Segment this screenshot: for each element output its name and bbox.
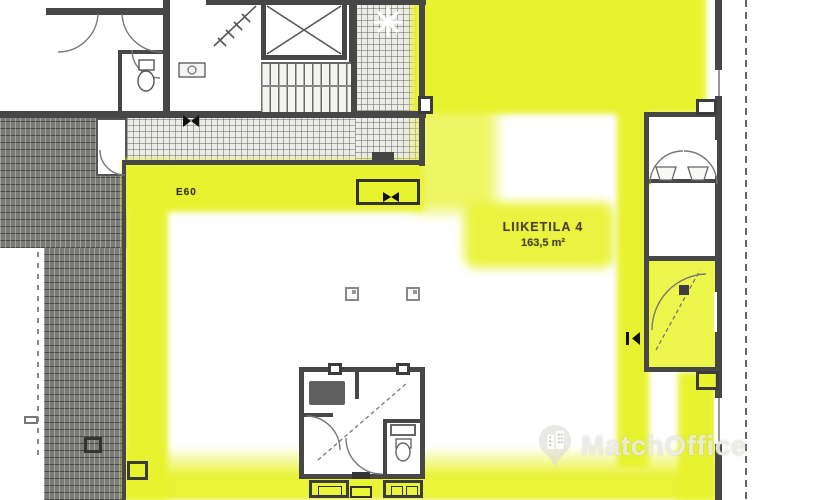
unit-area: 163,5 m² (468, 237, 618, 249)
floor-plan-canvas: LIIKETILA 4 163,5 m² E60 MatchOffice (0, 0, 825, 500)
wall (122, 160, 425, 165)
wall-left-boundary (122, 165, 126, 500)
unit-name: LIIKETILA 4 (468, 220, 618, 234)
wall-nib (696, 99, 717, 115)
wall-divider (644, 256, 722, 261)
wall-nib (418, 96, 433, 114)
wall (163, 0, 170, 115)
kitchen-fixture (309, 480, 349, 498)
watermark-text: MatchOffice (581, 430, 747, 462)
door-mat-mark (372, 152, 394, 160)
column-square-icon (406, 287, 420, 301)
watermark: MatchOffice (536, 423, 747, 469)
wall-south (0, 111, 426, 118)
window (714, 70, 723, 96)
door-threshold (352, 472, 370, 479)
wall (46, 8, 168, 15)
kitchen-fixture (383, 480, 423, 498)
elevator-shaft (261, 0, 347, 60)
entrance-niche (356, 179, 420, 205)
fixture-dark (309, 381, 345, 405)
right-room-block (644, 112, 722, 372)
fire-rating-label: E60 (176, 187, 197, 198)
utility-box (127, 461, 148, 480)
wall (118, 50, 122, 112)
survey-mark (24, 416, 38, 424)
stair-landing-line (261, 85, 351, 87)
unit-label: LIIKETILA 4 163,5 m² (468, 220, 618, 249)
wall-divider (649, 179, 717, 183)
staircase (261, 62, 351, 112)
wall (383, 419, 421, 423)
wall (355, 367, 359, 399)
vent-box (396, 363, 410, 375)
wall-nib (696, 371, 719, 390)
shelf-fixture (390, 424, 416, 436)
kitchen-fixture (350, 486, 372, 498)
wall (299, 413, 333, 417)
vent-box (328, 363, 342, 375)
wall (383, 419, 387, 479)
wall (118, 50, 168, 54)
utility-box (84, 437, 102, 453)
column-square-icon (345, 287, 359, 301)
location-pin-building-icon (536, 423, 574, 469)
wall (419, 0, 425, 166)
